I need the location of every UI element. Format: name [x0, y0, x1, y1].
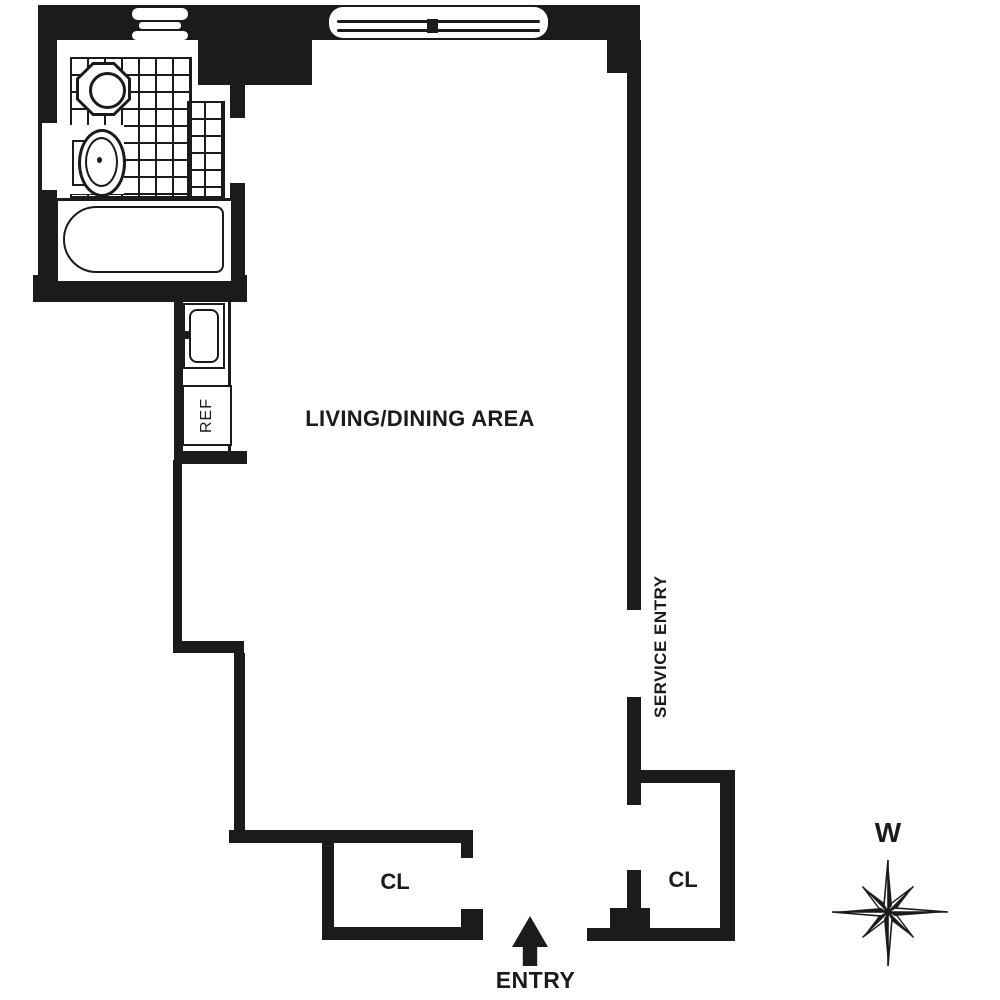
kitchen-sink-icon [189, 309, 219, 363]
wall-left-step [175, 641, 244, 653]
wall-left-lower2 [234, 653, 245, 832]
wall-closet-left-topstub [461, 843, 473, 858]
floor-plan: REF LIVING/DINING AREA SERVICE ENTRY CL … [0, 0, 1000, 1000]
wall-topright-step [607, 40, 641, 73]
toilet-bowl-rim [85, 137, 118, 187]
closet-right-label: CL [648, 867, 718, 893]
refrigerator-label: REF [198, 398, 216, 433]
entry-label: ENTRY [478, 967, 593, 994]
living-window-rail-top [337, 20, 540, 23]
bathroom-sink-icon [89, 72, 126, 109]
bathroom-window-sash [139, 22, 181, 29]
bathroom-window [132, 8, 188, 20]
living-dining-label: LIVING/DINING AREA [300, 406, 540, 432]
wall-closet-left-side [322, 843, 334, 940]
living-window-mullion [427, 19, 438, 33]
wall-closet-left-top [229, 830, 473, 843]
wall-kitchen-bottom [179, 451, 247, 464]
closet-left-label: CL [360, 869, 430, 895]
entry-arrow-icon [512, 916, 548, 966]
wall-left-lower [173, 460, 182, 653]
living-window-rail-bottom [337, 29, 540, 32]
bathroom-window-sill [132, 31, 188, 40]
wall-recess [42, 123, 57, 190]
wall-right-lower [627, 697, 641, 805]
wall-right-upper [627, 73, 641, 610]
wall-closet-left-botstub [461, 909, 483, 927]
kitchen-faucet-spout [181, 331, 191, 339]
wall-closet-right-jamb [610, 908, 650, 928]
compass-rose-icon [818, 852, 958, 982]
wall-closet-right-stub [627, 870, 641, 908]
refrigerator-box: REF [182, 385, 232, 446]
wall-closet-right-side [720, 770, 735, 941]
wall-bathroom-corner [198, 40, 312, 85]
wall-bathroom-door-jamb [230, 85, 245, 118]
wall-closet-right-bottom [587, 928, 735, 941]
bathroom-tile-floor-right [187, 101, 225, 198]
compass-direction-label: W [818, 817, 958, 849]
bathtub-icon [63, 206, 224, 273]
wall-closet-left-bottom [322, 927, 483, 940]
toilet-drain [97, 157, 102, 163]
service-entry-label: SERVICE ENTRY [651, 566, 685, 728]
